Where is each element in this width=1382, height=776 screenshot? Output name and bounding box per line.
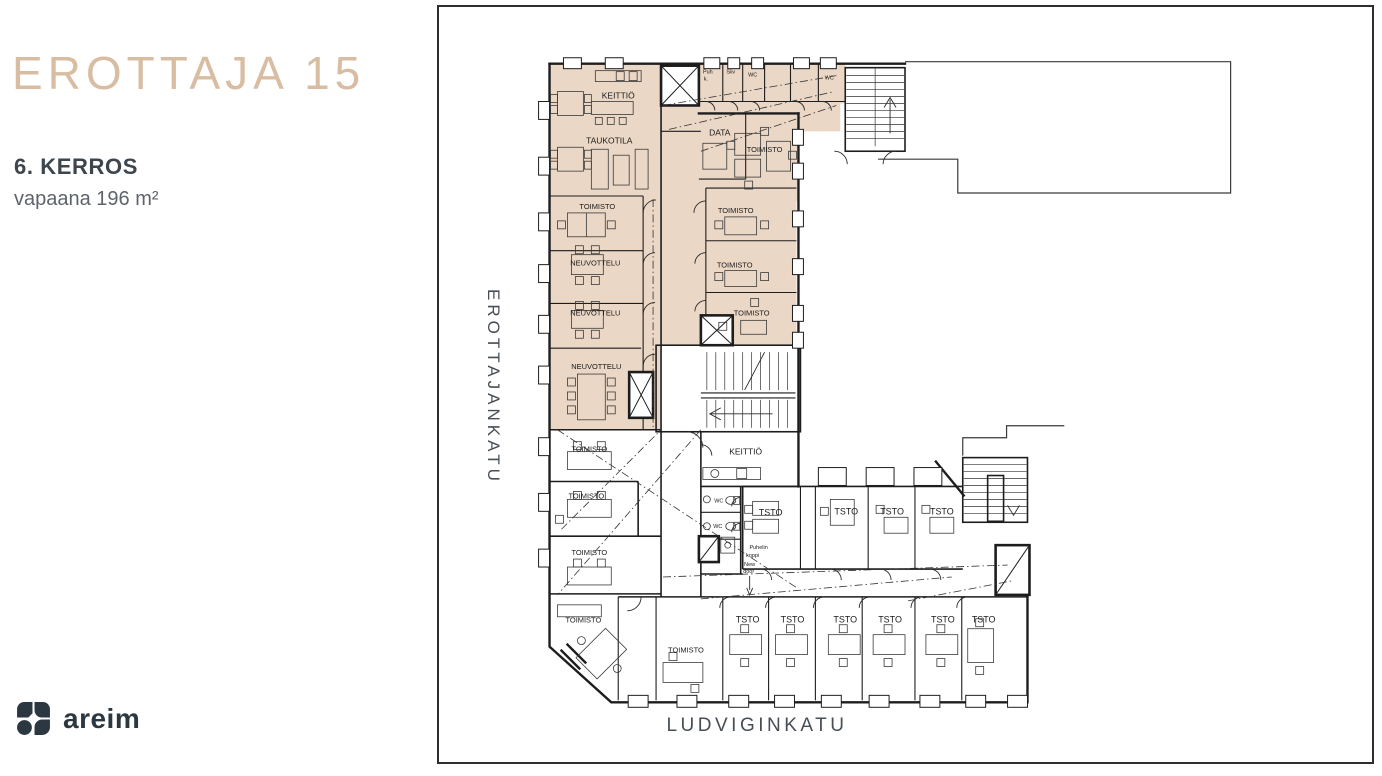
room-label: DATA [709,127,731,137]
floor-plan-panel: EROTTAJANKATU LUDVIGINKATU [437,5,1374,764]
room-label: TOIMISTO [565,616,601,625]
room-label: TOIMISTO [747,145,783,154]
room-label: TSTO [736,615,760,625]
room-label: k. [704,77,709,83]
room-label: TSTO [834,506,858,516]
floor-plan: KEITTIÖ TAUKOTILA Puh k. Siiv WC WC DATA… [439,7,1372,762]
room-label: TOIMISTO [571,548,607,557]
stairwell-central [701,352,796,428]
room-label: WC [825,76,834,82]
availability-text: vapaana 196 m² [14,188,159,211]
room-label: TSTO [781,615,805,625]
room-label: TOIMISTO [579,202,615,211]
areim-logo-icon [15,700,52,737]
room-label: NEUVOTTELU [571,362,621,371]
stairwell-right [964,465,1027,522]
room-label: TSTO [930,506,954,516]
room-label: TOIMISTO [718,206,754,215]
room-label: WC [713,524,722,530]
room-label: Siiv [726,70,735,76]
room-label: TSTO [878,615,902,625]
neighbor-outline [878,62,1230,456]
room-label: TSTO [972,615,996,625]
room-label: WC [748,73,757,79]
room-label: TSTO [833,615,857,625]
room-label: Puh [703,70,713,76]
areim-logo: areim [15,700,140,737]
room-label: TOIMISTO [571,445,607,454]
room-label: KEITTIÖ [602,91,635,101]
room-label: KEITTIÖ [729,447,762,457]
room-label: TAUKOTILA [586,135,633,145]
room-label: door [743,569,754,575]
room-label: TOIMISTO [668,646,704,655]
room-label: TSTO [880,506,904,516]
room-label: NEUVOTTELU [570,259,620,268]
room-label: NEUVOTTELU [570,308,620,317]
room-label: TOIMISTO [734,308,770,317]
room-label: New [744,562,755,568]
room-label: Puhelin [750,545,768,551]
room-label: TSTO [759,507,783,517]
room-label: TSTO [931,615,955,625]
floor-title: 6. KERROS [14,154,138,180]
room-label: TOIMISTO [717,261,753,270]
wordmark: EROTTAJA 15 [12,46,365,100]
room-label: TOIMISTO [568,491,604,500]
room-label: koppi [746,553,759,559]
room-label: WC [714,498,723,504]
areim-logo-text: areim [63,703,140,735]
